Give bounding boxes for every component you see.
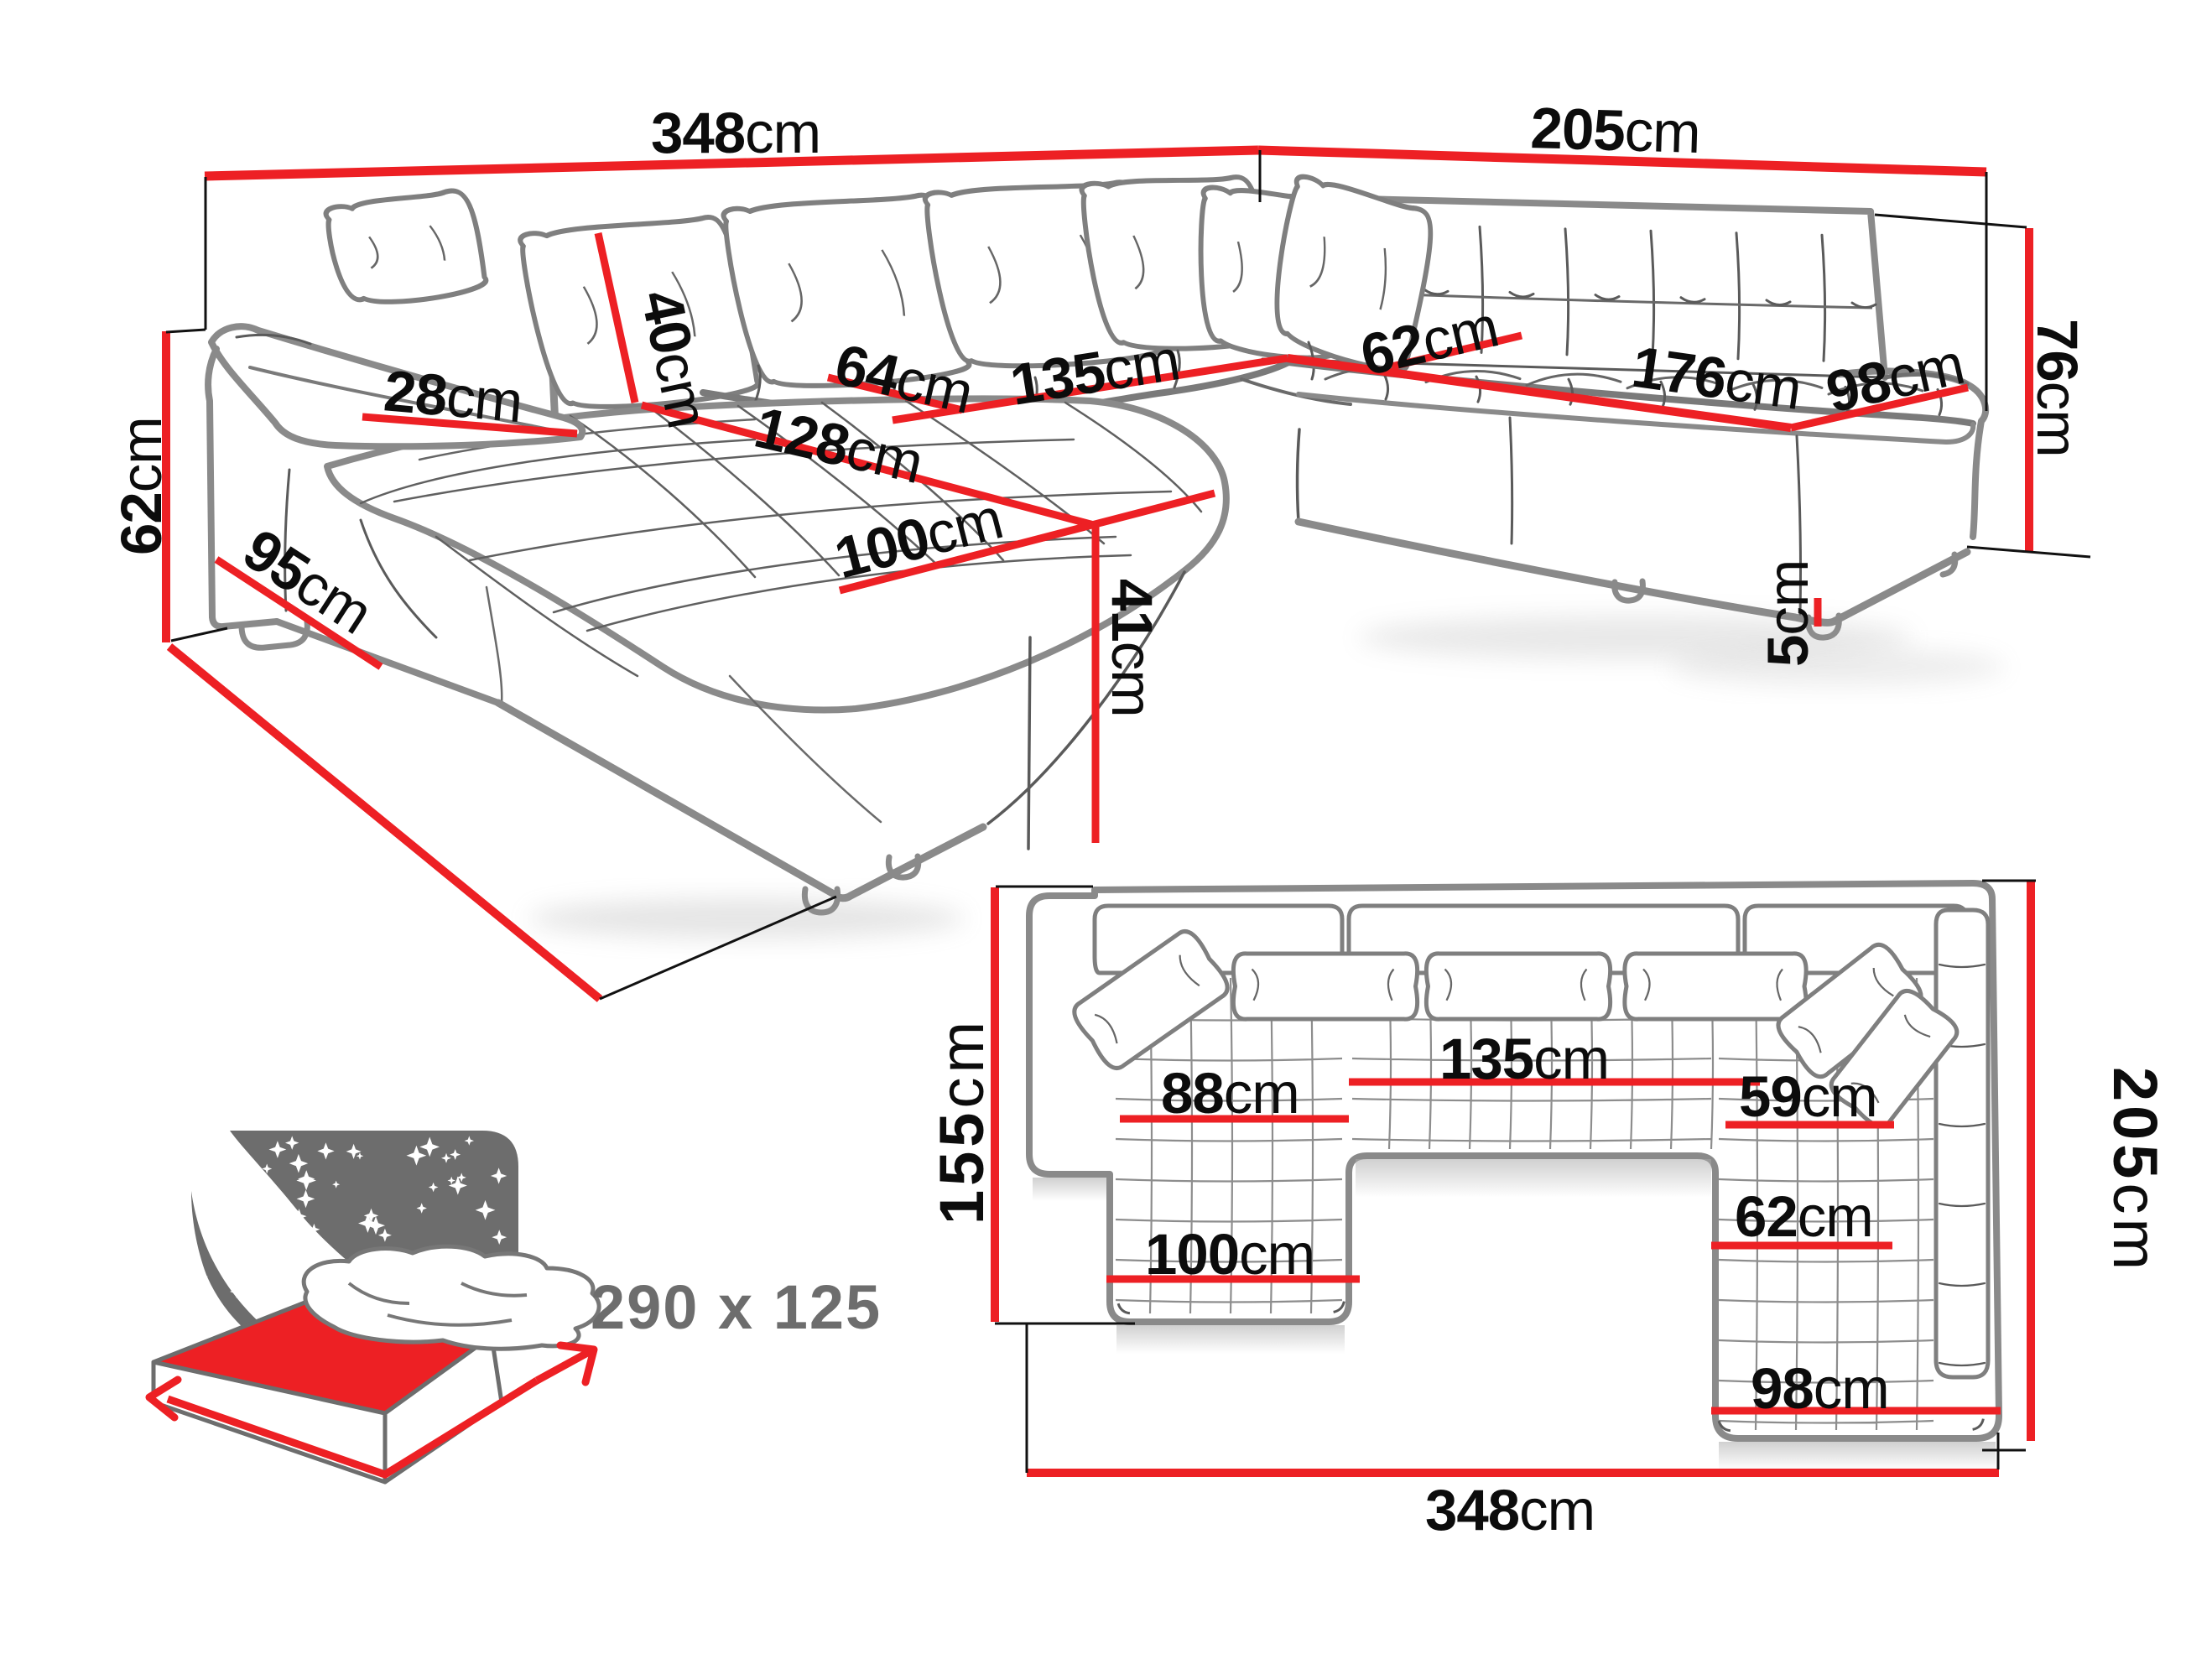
svg-text:135cm: 135cm [1439, 1027, 1609, 1091]
svg-text:348cm: 348cm [651, 101, 820, 165]
svg-text:59cm: 59cm [1739, 1064, 1877, 1129]
svg-text:76cm: 76cm [2025, 319, 2090, 457]
svg-text:290 x 125: 290 x 125 [591, 1272, 882, 1342]
svg-text:100cm: 100cm [1145, 1222, 1314, 1287]
svg-text:62cm: 62cm [1735, 1184, 1873, 1249]
svg-text:5cm: 5cm [1756, 560, 1820, 667]
svg-text:348cm: 348cm [1425, 1478, 1595, 1542]
svg-text:88cm: 88cm [1161, 1061, 1299, 1126]
svg-text:28cm: 28cm [382, 358, 525, 434]
svg-text:62cm: 62cm [109, 417, 174, 555]
svg-text:205cm: 205cm [1530, 96, 1701, 165]
svg-text:155cm: 155cm [927, 1017, 997, 1225]
svg-text:41cm: 41cm [1100, 579, 1164, 717]
svg-text:205cm: 205cm [2100, 1067, 2170, 1274]
svg-text:98cm: 98cm [1751, 1356, 1889, 1421]
